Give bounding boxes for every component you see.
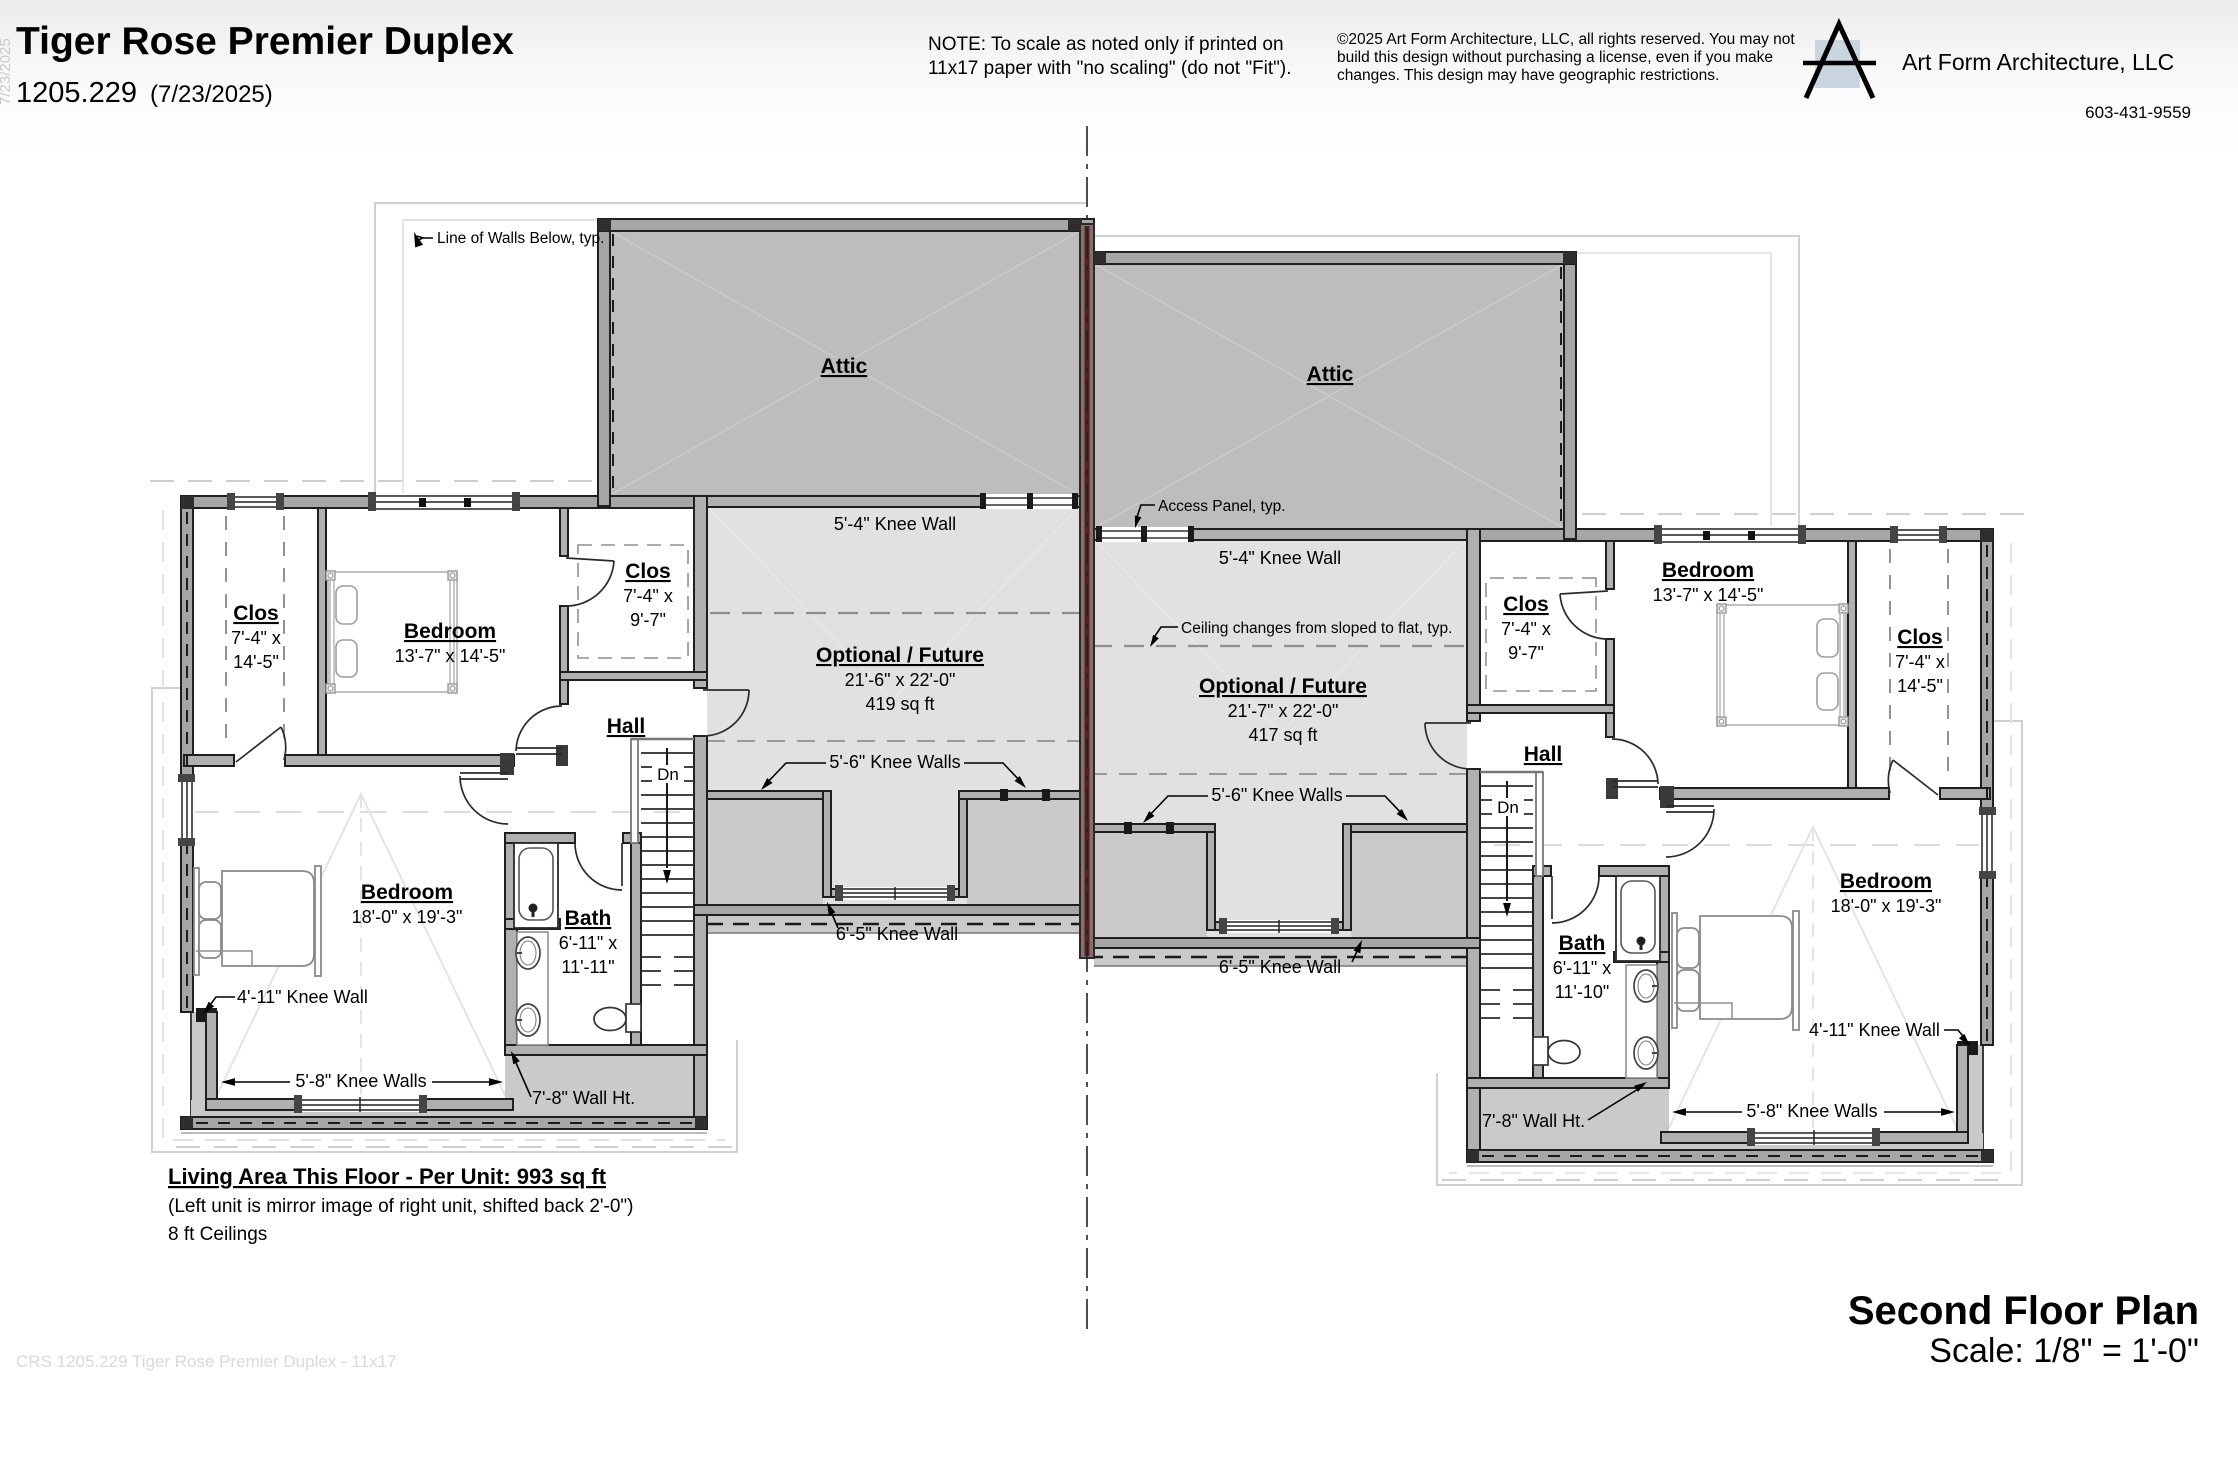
svg-text:Bath: Bath [1559, 932, 1606, 955]
svg-text:18'-0" x 19'-3": 18'-0" x 19'-3" [352, 907, 463, 927]
svg-text:Bath: Bath [565, 907, 612, 930]
svg-text:5'-4" Knee Wall: 5'-4" Knee Wall [1219, 548, 1341, 568]
svg-text:Tiger Rose Premier Duplex: Tiger Rose Premier Duplex [16, 20, 514, 63]
svg-text:6'-5" Knee Wall: 6'-5" Knee Wall [1219, 957, 1341, 977]
svg-text:Attic: Attic [821, 355, 868, 378]
svg-text:9'-7": 9'-7" [630, 610, 666, 630]
svg-text:Hall: Hall [607, 715, 646, 738]
svg-text:1205.229: 1205.229 [16, 77, 137, 109]
svg-text:13'-7" x 14'-5": 13'-7" x 14'-5" [1653, 585, 1764, 605]
svg-text:14'-5": 14'-5" [233, 652, 279, 672]
svg-text:14'-5": 14'-5" [1897, 676, 1943, 696]
svg-text:7'-8" Wall Ht.: 7'-8" Wall Ht. [532, 1088, 635, 1108]
svg-text:Dn: Dn [1497, 798, 1519, 817]
svg-text:changes. This design may have: changes. This design may have geographic… [1337, 67, 1719, 84]
svg-text:6'-11" x: 6'-11" x [1553, 958, 1612, 978]
svg-text:Living Area This Floor - Per U: Living Area This Floor - Per Unit: 993 s… [168, 1164, 607, 1189]
svg-text:Scale: 1/8" = 1'-0": Scale: 1/8" = 1'-0" [1929, 1332, 2199, 1370]
svg-text:6'-5" Knee Wall: 6'-5" Knee Wall [836, 924, 958, 944]
svg-text:13'-7" x 14'-5": 13'-7" x 14'-5" [395, 646, 506, 666]
svg-text:CRS 1205.229 Tiger Rose Premie: CRS 1205.229 Tiger Rose Premier Duplex -… [16, 1352, 396, 1371]
svg-text:7'-8" Wall Ht.: 7'-8" Wall Ht. [1482, 1111, 1585, 1131]
svg-text:419 sq ft: 419 sq ft [865, 694, 934, 714]
svg-text:Clos: Clos [233, 602, 279, 625]
svg-text:Hall: Hall [1524, 743, 1563, 766]
svg-text:417 sq ft: 417 sq ft [1248, 725, 1317, 745]
svg-text:9'-7": 9'-7" [1508, 643, 1544, 663]
svg-text:21'-6" x 22'-0": 21'-6" x 22'-0" [845, 670, 956, 690]
svg-text:8 ft Ceilings: 8 ft Ceilings [168, 1224, 267, 1245]
svg-text:7/23/2025: 7/23/2025 [0, 38, 14, 105]
svg-text:Clos: Clos [1503, 593, 1549, 616]
svg-text:Bedroom: Bedroom [1840, 870, 1932, 893]
svg-text:5'-6" Knee Walls: 5'-6" Knee Walls [1211, 785, 1342, 805]
svg-text:18'-0" x 19'-3": 18'-0" x 19'-3" [1831, 896, 1942, 916]
svg-text:11'-11": 11'-11" [561, 957, 614, 977]
svg-text:5'-8" Knee Walls: 5'-8" Knee Walls [295, 1071, 426, 1091]
svg-text:11x17 paper with "no scaling": 11x17 paper with "no scaling" (do not "F… [928, 58, 1292, 79]
svg-text:(Left unit is mirror image of: (Left unit is mirror image of right unit… [168, 1196, 634, 1217]
svg-text:Ceiling changes from sloped to: Ceiling changes from sloped to flat, typ… [1181, 620, 1452, 637]
svg-text:Optional / Future: Optional / Future [1199, 675, 1367, 698]
svg-text:Clos: Clos [1897, 626, 1943, 649]
svg-text:NOTE: To scale as noted only i: NOTE: To scale as noted only if printed … [928, 34, 1284, 55]
svg-text:11'-10": 11'-10" [1555, 982, 1610, 1002]
svg-text:Attic: Attic [1307, 363, 1354, 386]
svg-text:7'-4" x: 7'-4" x [231, 628, 281, 648]
svg-text:603-431-9559: 603-431-9559 [2085, 103, 2191, 122]
svg-text:21'-7" x 22'-0": 21'-7" x 22'-0" [1228, 701, 1339, 721]
svg-text:Clos: Clos [625, 560, 671, 583]
svg-text:Optional / Future: Optional / Future [816, 644, 984, 667]
svg-text:Art Form Architecture, LLC: Art Form Architecture, LLC [1902, 49, 2174, 75]
svg-text:Bedroom: Bedroom [404, 620, 496, 643]
svg-text:Bedroom: Bedroom [361, 881, 453, 904]
svg-text:(7/23/2025): (7/23/2025) [150, 81, 273, 108]
svg-text:5'-4" Knee Wall: 5'-4" Knee Wall [834, 514, 956, 534]
svg-text:Bedroom: Bedroom [1662, 559, 1754, 582]
svg-text:7'-4" x: 7'-4" x [1501, 619, 1551, 639]
svg-text:Second Floor Plan: Second Floor Plan [1848, 1289, 2199, 1333]
svg-text:4'-11" Knee Wall: 4'-11" Knee Wall [1809, 1020, 1940, 1040]
svg-text:6'-11" x: 6'-11" x [559, 933, 618, 953]
svg-text:7'-4" x: 7'-4" x [623, 586, 673, 606]
svg-text:©2025 Art Form Architecture, L: ©2025 Art Form Architecture, LLC, all ri… [1337, 31, 1795, 48]
svg-text:4'-11" Knee Wall: 4'-11" Knee Wall [237, 987, 368, 1007]
svg-text:7'-4" x: 7'-4" x [1895, 652, 1945, 672]
svg-text:Line of Walls Below, typ.: Line of Walls Below, typ. [437, 230, 604, 247]
svg-text:Dn: Dn [657, 765, 679, 784]
svg-text:5'-8" Knee Walls: 5'-8" Knee Walls [1746, 1101, 1877, 1121]
svg-text:5'-6" Knee Walls: 5'-6" Knee Walls [829, 752, 960, 772]
svg-text:Access Panel, typ.: Access Panel, typ. [1158, 498, 1286, 515]
svg-text:build this design without purc: build this design without purchasing a l… [1337, 49, 1773, 66]
